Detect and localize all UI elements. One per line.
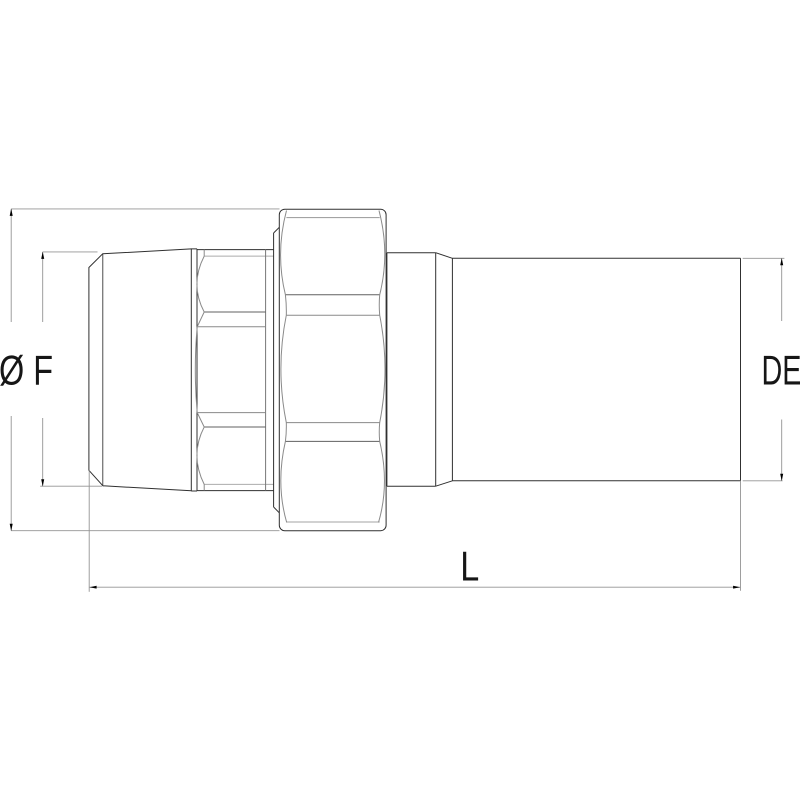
svg-text:DE: DE — [762, 347, 800, 394]
svg-text:L: L — [460, 543, 479, 590]
svg-text:Ø F: Ø F — [0, 347, 53, 394]
